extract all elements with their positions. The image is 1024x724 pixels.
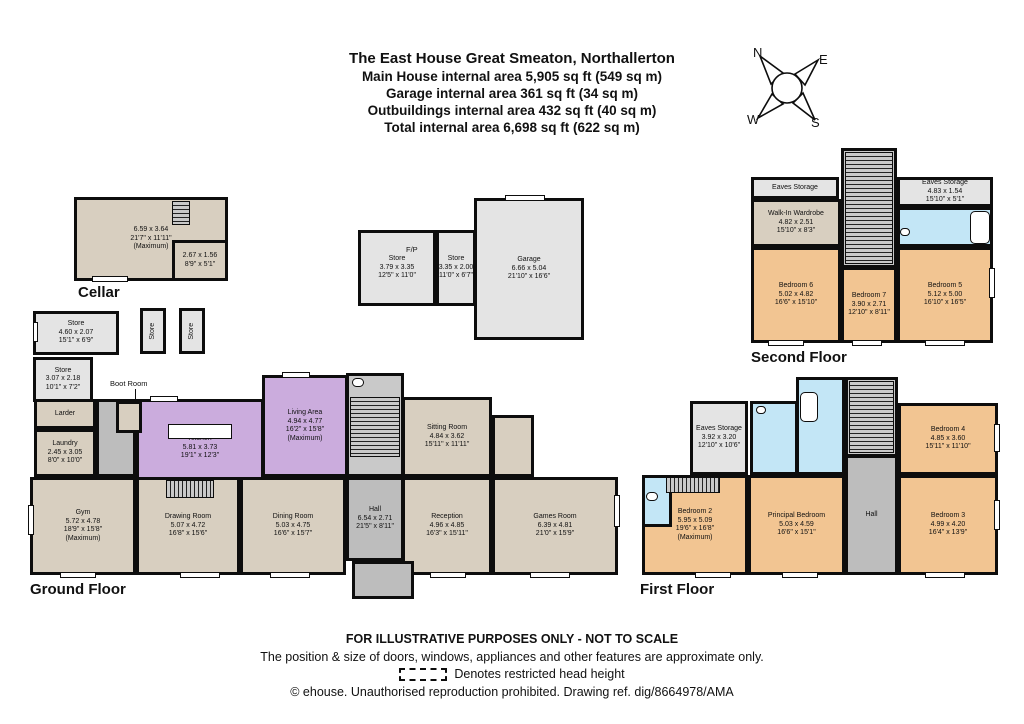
room-bedroom-3: Bedroom 34.99 x 4.2016'4" x 13'9"	[898, 475, 998, 575]
title-block: The East House Great Smeaton, Northaller…	[0, 50, 1024, 136]
room-bedroom-4: Bedroom 44.85 x 3.6015'11" x 11'10"	[898, 403, 998, 475]
window-3	[270, 572, 310, 578]
second-floor-label: Second Floor	[751, 349, 847, 366]
toilet-ff-wc-icon	[646, 492, 658, 501]
room-cellar-store: 2.67 x 1.568'9" x 5'1"	[172, 240, 228, 281]
bathtub-first-floor-icon	[800, 392, 818, 422]
room-outbuilding-store-fp: Store3.79 x 3.3512'5" x 11'0"	[358, 230, 436, 306]
outbuildings-area: Outbuildings internal area 432 sq ft (40…	[0, 102, 1024, 119]
room-gym: Gym5.72 x 4.7818'9" x 15'8"(Maximum)	[30, 477, 136, 575]
room-walk-in-wardrobe: Walk-In Wardrobe4.82 x 2.5115'10" x 8'3"	[751, 199, 841, 247]
main-house-area: Main House internal area 5,905 sq ft (54…	[0, 68, 1024, 85]
kitchen-island-icon	[168, 424, 232, 439]
cellar-stairs-icon	[172, 201, 190, 225]
window-12	[768, 340, 804, 346]
window-11	[92, 276, 128, 282]
sf-stairs-icon	[845, 152, 893, 264]
compass-s: S	[811, 115, 820, 130]
cellar-label: Cellar	[78, 284, 120, 301]
room-laundry: Laundry2.45 x 3.058'0" x 10'0"	[34, 429, 96, 477]
room-larder: Larder	[34, 399, 96, 429]
window-18	[925, 572, 965, 578]
room-games-room: Games Room6.39 x 4.8121'0" x 15'9"	[492, 477, 618, 575]
fireplace-label: F/P	[406, 245, 418, 254]
ground-floor-label: Ground Floor	[30, 581, 126, 598]
restricted-head-height-legend: Denotes restricted head height	[0, 666, 1024, 684]
restricted-head-height-icon	[399, 668, 447, 681]
window-10	[28, 505, 34, 535]
room-ff-eaves-storage: Eaves Storage3.92 x 3.2012'10" x 10'6"	[690, 401, 748, 475]
garage-area: Garage internal area 361 sq ft (34 sq m)	[0, 85, 1024, 102]
window-15	[989, 268, 995, 298]
gf-rear-corridor	[492, 415, 534, 477]
gf-stairs-icon	[350, 397, 400, 457]
room-store-v2: Store	[179, 308, 205, 354]
toilet-ff-shower-icon	[756, 406, 766, 414]
room-bedroom-6: Bedroom 65.02 x 4.8216'6" x 15'10"	[751, 247, 841, 343]
window-17	[782, 572, 818, 578]
floorplan-page: The East House Great Smeaton, Northaller…	[0, 0, 1024, 724]
window-13	[852, 340, 882, 346]
window-6	[614, 495, 620, 527]
window-14	[925, 340, 965, 346]
ff-stairs-icon	[849, 381, 894, 453]
toilet-sf-bath-icon	[900, 228, 910, 236]
window-19	[994, 500, 1000, 530]
room-principal-bedroom: Principal Bedroom5.03 x 4.5916'6" x 15'1…	[748, 475, 845, 575]
room-ff-hall: Hall	[845, 455, 898, 575]
window-9	[505, 195, 545, 201]
window-5	[530, 572, 570, 578]
footer-block: FOR ILLUSTRATIVE PURPOSES ONLY - NOT TO …	[0, 631, 1024, 701]
drawing-room-stairs-icon	[166, 480, 214, 498]
boot-room-arrow	[135, 389, 136, 402]
window-1	[60, 572, 96, 578]
compass-icon: N E W S	[733, 42, 837, 134]
room-store-1: Store4.60 x 2.0715'1" x 6'9"	[33, 311, 119, 355]
room-outbuilding-store-small: Store3.35 x 2.0011'0" x 6'7"	[436, 230, 476, 306]
room-store-2: Store3.07 x 2.1810'1" x 7'2"	[33, 357, 93, 402]
room-gf-hall: Hall6.54 x 2.7121'5" x 8'11"	[346, 477, 404, 561]
total-area: Total internal area 6,698 sq ft (622 sq …	[0, 119, 1024, 136]
disclaimer-text: The position & size of doors, windows, a…	[0, 649, 1024, 667]
page-title: The East House Great Smeaton, Northaller…	[0, 50, 1024, 68]
boot-room	[116, 401, 142, 433]
window-16	[695, 572, 731, 578]
toilet-gf-icon	[352, 378, 364, 387]
window-2	[180, 572, 220, 578]
window-20	[994, 424, 1000, 452]
room-living-area: Living Area4.94 x 4.7716'2" x 15'8"(Maxi…	[262, 375, 348, 477]
room-bedroom-7: Bedroom 73.90 x 2.7112'10" x 8'11"	[841, 267, 897, 343]
gf-porch	[352, 561, 414, 599]
room-store-v1: Store	[140, 308, 166, 354]
room-reception: Reception4.96 x 4.8516'3" x 15'11"	[402, 477, 492, 575]
disclaimer-title: FOR ILLUSTRATIVE PURPOSES ONLY - NOT TO …	[0, 631, 1024, 649]
room-bedroom-5: Bedroom 55.12 x 5.0016'10" x 16'5"	[897, 247, 993, 343]
copyright-text: © ehouse. Unauthorised reproduction proh…	[0, 684, 1024, 702]
compass-w: W	[747, 112, 760, 127]
first-floor-label: First Floor	[640, 581, 714, 598]
window-4	[430, 572, 466, 578]
compass-e: E	[819, 52, 828, 67]
room-sitting-room: Sitting Room4.84 x 3.6215'11" x 11'11"	[402, 397, 492, 477]
bathtub-second-floor-icon	[970, 211, 990, 244]
window-8	[282, 372, 310, 378]
room-eaves-storage-right: Eaves Storage4.83 x 1.5415'10" x 5'1"	[897, 177, 993, 207]
bedroom2-stairs-icon	[666, 477, 720, 493]
window-21	[33, 322, 38, 342]
room-dining-room: Dining Room5.03 x 4.7516'6" x 15'7"	[240, 477, 346, 575]
room-garage: Garage6.66 x 5.0421'10" x 16'6"	[474, 198, 584, 340]
boot-room-label: Boot Room	[110, 379, 148, 388]
room-eaves-storage-left: Eaves Storage	[751, 177, 839, 199]
compass-n: N	[753, 45, 762, 60]
window-7	[150, 396, 178, 402]
